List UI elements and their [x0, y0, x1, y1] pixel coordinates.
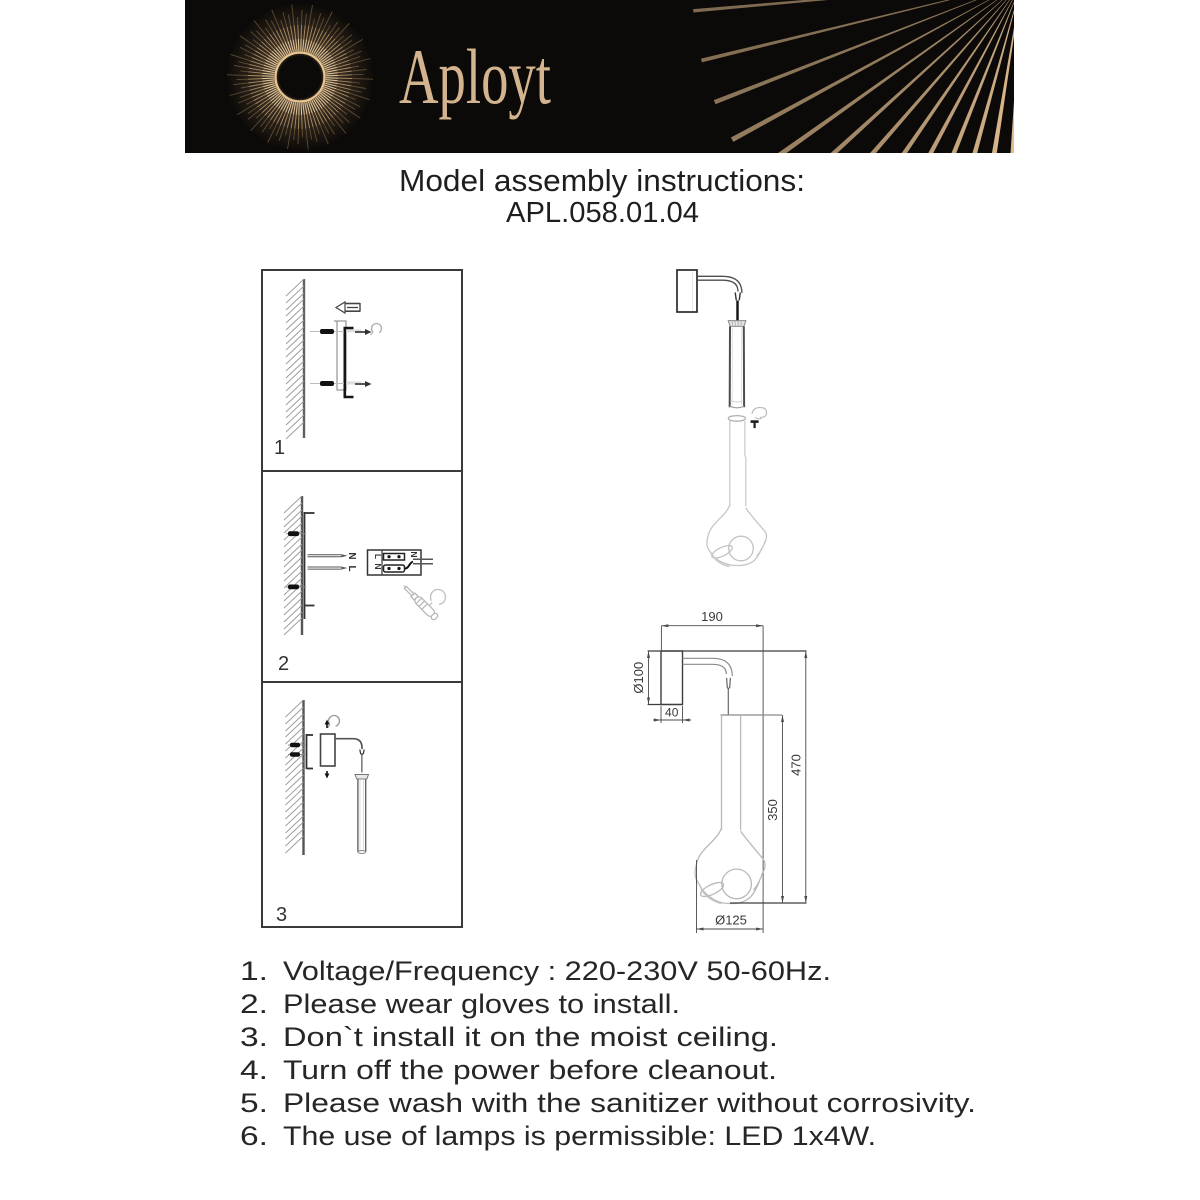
svg-text:2.: 2.: [240, 989, 268, 1019]
svg-text:Ø125: Ø125: [715, 913, 747, 928]
svg-text:1: 1: [274, 437, 285, 459]
svg-text:Don`t install it on the moist: Don`t install it on the moist ceiling.: [283, 1022, 778, 1052]
svg-text:3: 3: [276, 904, 287, 926]
svg-text:APL.058.01.04: APL.058.01.04: [506, 197, 699, 229]
svg-text:Ø100: Ø100: [631, 662, 646, 694]
svg-text:Model assembly instructions:: Model assembly instructions:: [399, 163, 805, 198]
svg-text:4.: 4.: [240, 1055, 268, 1085]
svg-text:6.: 6.: [240, 1121, 268, 1151]
svg-text:The use of lamps is permissibl: The use of lamps is permissible: LED 1x4…: [283, 1121, 876, 1151]
svg-text:350: 350: [765, 799, 780, 821]
svg-text:N: N: [373, 563, 383, 569]
svg-text:470: 470: [788, 754, 803, 776]
svg-text:5.: 5.: [240, 1088, 268, 1118]
svg-text:Turn off the power before clea: Turn off the power before cleanout.: [283, 1055, 777, 1085]
svg-text:3.: 3.: [240, 1022, 268, 1052]
svg-text:L: L: [373, 554, 383, 559]
svg-text:N: N: [409, 551, 419, 557]
svg-text:190: 190: [701, 609, 723, 624]
svg-text:N: N: [346, 552, 357, 559]
svg-text:Please wear gloves to install.: Please wear gloves to install.: [283, 989, 680, 1019]
svg-text:Voltage/Frequency : 220-230V 5: Voltage/Frequency : 220-230V 50-60Hz.: [283, 956, 831, 986]
svg-text:Please wash with the sanitizer: Please wash with the sanitizer without c…: [283, 1088, 976, 1118]
svg-text:1.: 1.: [240, 956, 268, 986]
svg-text:Aployt: Aployt: [399, 33, 551, 120]
svg-text:L: L: [346, 565, 357, 571]
svg-text:40: 40: [665, 706, 679, 720]
svg-text:2: 2: [278, 653, 289, 675]
